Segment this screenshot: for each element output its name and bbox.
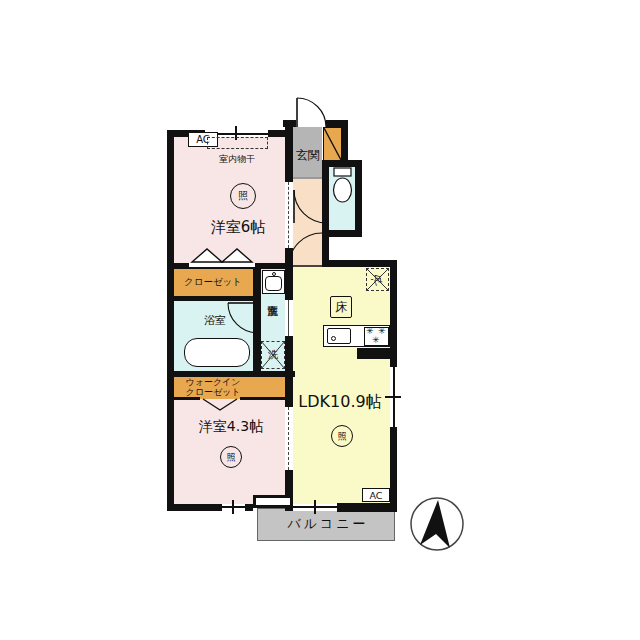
- entrance-door-opening: [296, 120, 326, 127]
- compass-needle: [420, 500, 450, 548]
- floor-hatch-label: 床: [335, 299, 347, 316]
- room-label-bath: 浴室: [204, 313, 226, 328]
- room-label-balcony: バルコニー: [287, 515, 368, 533]
- wall: [167, 504, 222, 511]
- wall: [355, 160, 362, 237]
- room-label-western43: 洋室4.3帖: [199, 418, 263, 436]
- wall: [322, 260, 397, 267]
- room-label-entrance: 玄関: [296, 147, 320, 164]
- sliding-door-mark: [288, 300, 289, 336]
- bathtub: [184, 338, 250, 367]
- bay-box: [253, 495, 293, 508]
- sliding-door-opening: [285, 182, 293, 248]
- window-line: [222, 506, 245, 508]
- wall: [322, 160, 329, 267]
- shoe-cabinet: [323, 127, 342, 161]
- room-label-western6: 洋室6帖: [211, 218, 266, 237]
- hallway: [293, 178, 322, 267]
- kitchen-partition: [357, 348, 393, 359]
- room-label-closet: クローゼット: [184, 276, 242, 289]
- room-label-ldk: LDK10.9帖: [298, 392, 381, 413]
- light-symbol: 照: [331, 425, 353, 447]
- wall: [240, 397, 287, 400]
- light-label: 照: [227, 451, 236, 464]
- entrance-step-line: [293, 177, 322, 179]
- drying-rail-label: 室内物干: [219, 153, 255, 166]
- washroom-door-opening: [285, 300, 293, 336]
- room-label-wic: ウォークイン クローゼット: [185, 377, 240, 397]
- washer-space: 洗: [261, 341, 285, 369]
- light-symbol: 照: [230, 183, 256, 209]
- window-tick: [232, 500, 234, 514]
- compass-circle: [411, 498, 463, 550]
- wall: [174, 397, 200, 400]
- toilet-room: [329, 167, 355, 230]
- light-label: 照: [338, 430, 347, 443]
- sliding-door-mark: [288, 182, 289, 248]
- sliding-door-mark: [288, 407, 289, 470]
- fridge-label: 冷: [370, 272, 385, 287]
- stove-burner: ✳: [372, 336, 380, 345]
- washbasin-bowl: [265, 276, 282, 291]
- floor-plan: 洗 冷 床 ✳ ✳ ✳ AC AC 室内物干 照 照 照 洋室6帖 玄関 クロー…: [0, 0, 640, 640]
- window-tick: [385, 396, 401, 398]
- drying-rail: [207, 137, 268, 149]
- wic-label-line1: ウォークイン: [185, 377, 240, 387]
- sink-drain: [331, 336, 336, 341]
- floor-hatch: 床: [330, 296, 352, 318]
- fridge-space: 冷: [366, 268, 389, 291]
- wall: [167, 130, 174, 511]
- sliding-door-opening: [285, 407, 293, 470]
- light-label: 照: [238, 189, 248, 203]
- light-symbol: 照: [220, 446, 242, 468]
- wall: [174, 296, 253, 301]
- ac-label: AC: [370, 490, 383, 501]
- closet-opening-line: [189, 267, 255, 269]
- wall: [253, 263, 261, 371]
- window-tick: [314, 500, 316, 514]
- wall: [337, 503, 397, 512]
- washer-label: 洗: [268, 350, 278, 360]
- ac-unit-badge: AC: [362, 488, 390, 502]
- wall: [245, 504, 253, 511]
- wic-label-line2: クローゼット: [185, 387, 240, 397]
- washbasin-faucet: [272, 272, 276, 276]
